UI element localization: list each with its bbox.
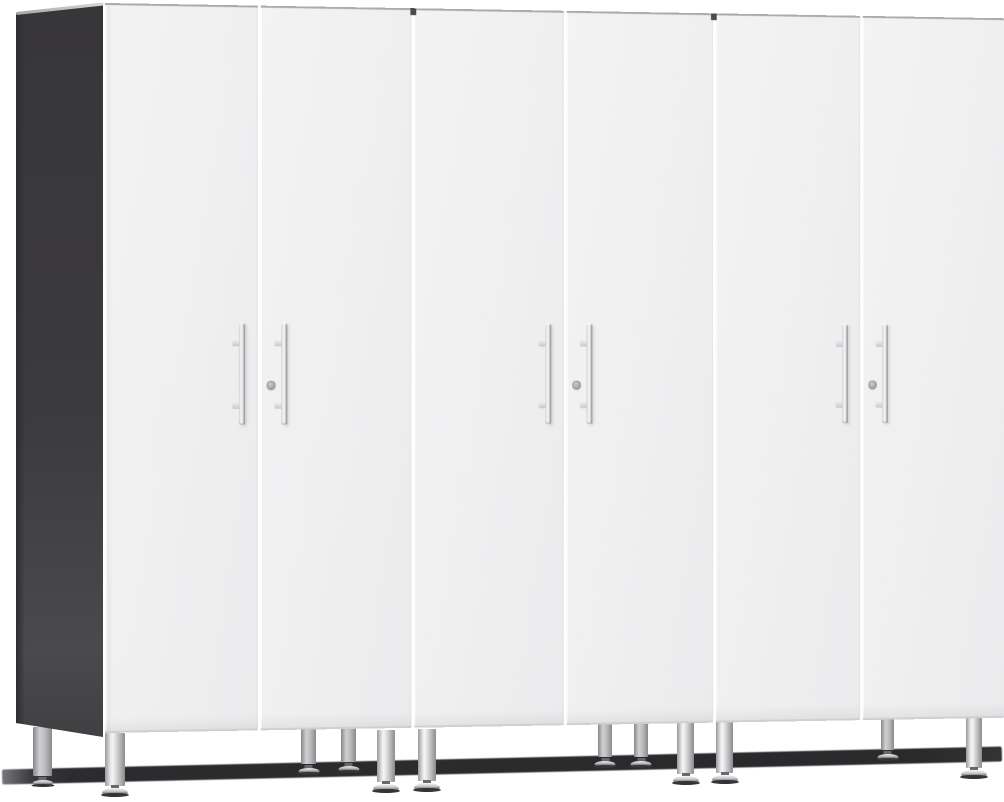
leveling-foot [31, 777, 54, 787]
cabinet-2-door-right [566, 11, 713, 725]
handle-bar [586, 323, 592, 424]
cabinet-leg-cab3-front-right [966, 718, 982, 779]
leg-cylinder [598, 722, 612, 757]
leveling-foot [413, 780, 441, 792]
leveling-foot [672, 773, 700, 785]
cabinet-leg-cab2-back-right [598, 722, 612, 768]
cabinet-front-face [105, 3, 1004, 733]
cabinet-gap-notch [711, 13, 717, 20]
handle-bar [239, 322, 245, 424]
foot-base [711, 780, 739, 784]
leg-cylinder [881, 719, 894, 750]
leveling-foot [337, 763, 360, 773]
foot-base [876, 758, 899, 761]
leveling-foot [711, 772, 739, 784]
foot-base [337, 770, 360, 773]
cabinet-2-left-door-handle [545, 323, 551, 424]
product-photo-canvas [0, 0, 1004, 802]
leg-cylinder [966, 718, 982, 768]
handle-bar [882, 324, 888, 423]
foot-base [630, 765, 653, 768]
leveling-foot [594, 758, 617, 768]
foot-base [372, 789, 400, 793]
foot-base [960, 775, 988, 779]
cabinet-leg-cab2-back-left [341, 724, 356, 773]
cabinet-leg-cab3-back-right [881, 719, 894, 761]
leg-cylinder [33, 727, 52, 776]
cabinet-leg-cab1-back-left [33, 727, 52, 787]
cabinet-2-lock-cylinder [572, 381, 581, 390]
handle-bar [545, 323, 551, 424]
cabinet-1-door-left [105, 3, 258, 733]
cabinet-1-right-door-handle [282, 322, 288, 424]
handle-bar [282, 322, 288, 424]
cabinet-leg-cab1-front-left [105, 733, 125, 797]
cabinet-leg-cab1-front-right [377, 730, 395, 793]
cabinet-3-door-left [715, 13, 859, 722]
leg-cylinder [418, 729, 436, 781]
cabinet-3-right-door-handle [882, 324, 888, 423]
cabinet-3-lock-cylinder [868, 381, 876, 390]
cabinet-leg-cab3-front-left [716, 721, 733, 784]
cabinet-side-panel [16, 3, 103, 740]
foot-base [594, 765, 617, 768]
foot-base [101, 793, 129, 797]
leg-cylinder [341, 724, 356, 762]
cabinet-leg-cab2-front-left [418, 729, 436, 792]
cabinet-leg-cab2-front-right [677, 722, 694, 785]
cabinet-1-lock-cylinder [267, 381, 276, 390]
leg-cylinder [301, 725, 316, 764]
leg-cylinder [377, 730, 395, 782]
leveling-foot [876, 751, 899, 761]
leveling-foot [297, 765, 320, 775]
cabinet-3-left-door-handle [842, 324, 848, 423]
cabinet-3-door-right [863, 16, 1004, 720]
foot-base [413, 788, 441, 792]
foot-base [297, 772, 320, 775]
leg-cylinder [677, 722, 694, 774]
cabinet-leg-cab3-back-left [634, 722, 648, 768]
cabinet-gap-notch [410, 8, 416, 15]
foot-base [31, 784, 54, 787]
leveling-foot [630, 758, 653, 768]
leveling-foot [960, 767, 988, 779]
cabinet-leg-cab1-back-right [301, 725, 316, 775]
leveling-foot [101, 785, 129, 797]
foot-base [672, 781, 700, 785]
cabinet-1-left-door-handle [239, 322, 245, 424]
leveling-foot [372, 781, 400, 793]
leg-cylinder [716, 721, 733, 773]
cabinet-2-right-door-handle [586, 323, 592, 424]
cabinet-2-door-left [415, 8, 564, 727]
handle-bar [842, 324, 848, 423]
cabinet-1-door-right [261, 6, 412, 731]
leg-cylinder [105, 733, 125, 786]
leg-cylinder [634, 722, 648, 757]
